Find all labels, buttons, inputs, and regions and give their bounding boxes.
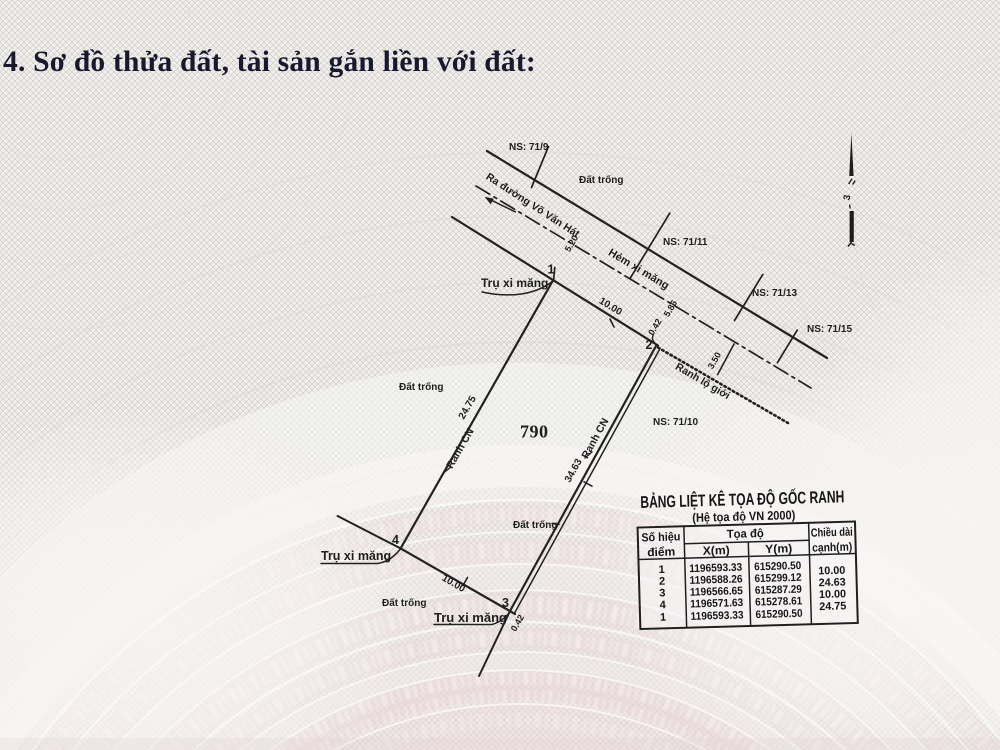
svg-text:2: 2 bbox=[646, 338, 653, 352]
svg-text:X(m): X(m) bbox=[703, 543, 730, 558]
svg-text:Trụ xi măng: Trụ xi măng bbox=[321, 549, 391, 563]
svg-text:615278.61: 615278.61 bbox=[755, 595, 802, 608]
svg-text:24.63: 24.63 bbox=[819, 576, 846, 589]
svg-text:Đất trống: Đất trống bbox=[399, 381, 443, 393]
svg-text:Đất trống: Đất trống bbox=[579, 174, 623, 186]
svg-text:điểm: điểm bbox=[647, 545, 675, 560]
svg-text:NS: 71/15: NS: 71/15 bbox=[807, 324, 852, 335]
svg-text:3: 3 bbox=[502, 596, 509, 610]
svg-text:cạnh(m): cạnh(m) bbox=[812, 540, 852, 555]
svg-text:NS: 71/10: NS: 71/10 bbox=[653, 417, 698, 428]
svg-text:4: 4 bbox=[392, 533, 399, 547]
svg-text:615290.50: 615290.50 bbox=[755, 608, 802, 621]
svg-text:790: 790 bbox=[520, 422, 549, 442]
svg-text:Đất trống: Đất trống bbox=[382, 597, 426, 609]
svg-text:Trụ xi măng: Trụ xi măng bbox=[481, 276, 548, 290]
svg-text:3: 3 bbox=[659, 587, 665, 599]
svg-text:1: 1 bbox=[548, 263, 555, 277]
svg-text:Đất trống: Đất trống bbox=[513, 519, 557, 531]
svg-text:NS: 71/9: NS: 71/9 bbox=[509, 142, 549, 153]
svg-text:NS: 71/13: NS: 71/13 bbox=[752, 288, 797, 299]
svg-text:10.00: 10.00 bbox=[819, 588, 846, 601]
svg-text:24.75: 24.75 bbox=[819, 600, 846, 613]
svg-text:2: 2 bbox=[659, 576, 665, 588]
svg-text:1: 1 bbox=[660, 612, 666, 624]
svg-text:1: 1 bbox=[659, 564, 665, 576]
svg-text:1196571.63: 1196571.63 bbox=[690, 597, 743, 610]
svg-text:10.00: 10.00 bbox=[818, 565, 845, 578]
svg-text:Chiều dài: Chiều dài bbox=[811, 525, 853, 540]
svg-text:1196593.33: 1196593.33 bbox=[690, 609, 743, 622]
svg-text:Tọa độ: Tọa độ bbox=[727, 526, 764, 541]
svg-text:4. Sơ đồ thửa đất, tài sản gắn: 4. Sơ đồ thửa đất, tài sản gắn liền với … bbox=[3, 46, 536, 78]
svg-text:Y(m): Y(m) bbox=[765, 541, 792, 556]
svg-text:(Hệ tọa độ VN 2000): (Hệ tọa độ VN 2000) bbox=[692, 508, 795, 525]
svg-text:Số hiệu: Số hiệu bbox=[641, 529, 680, 544]
svg-text:NS: 71/11: NS: 71/11 bbox=[663, 237, 708, 248]
svg-text:Trụ xi măng: Trụ xi măng bbox=[434, 610, 507, 625]
